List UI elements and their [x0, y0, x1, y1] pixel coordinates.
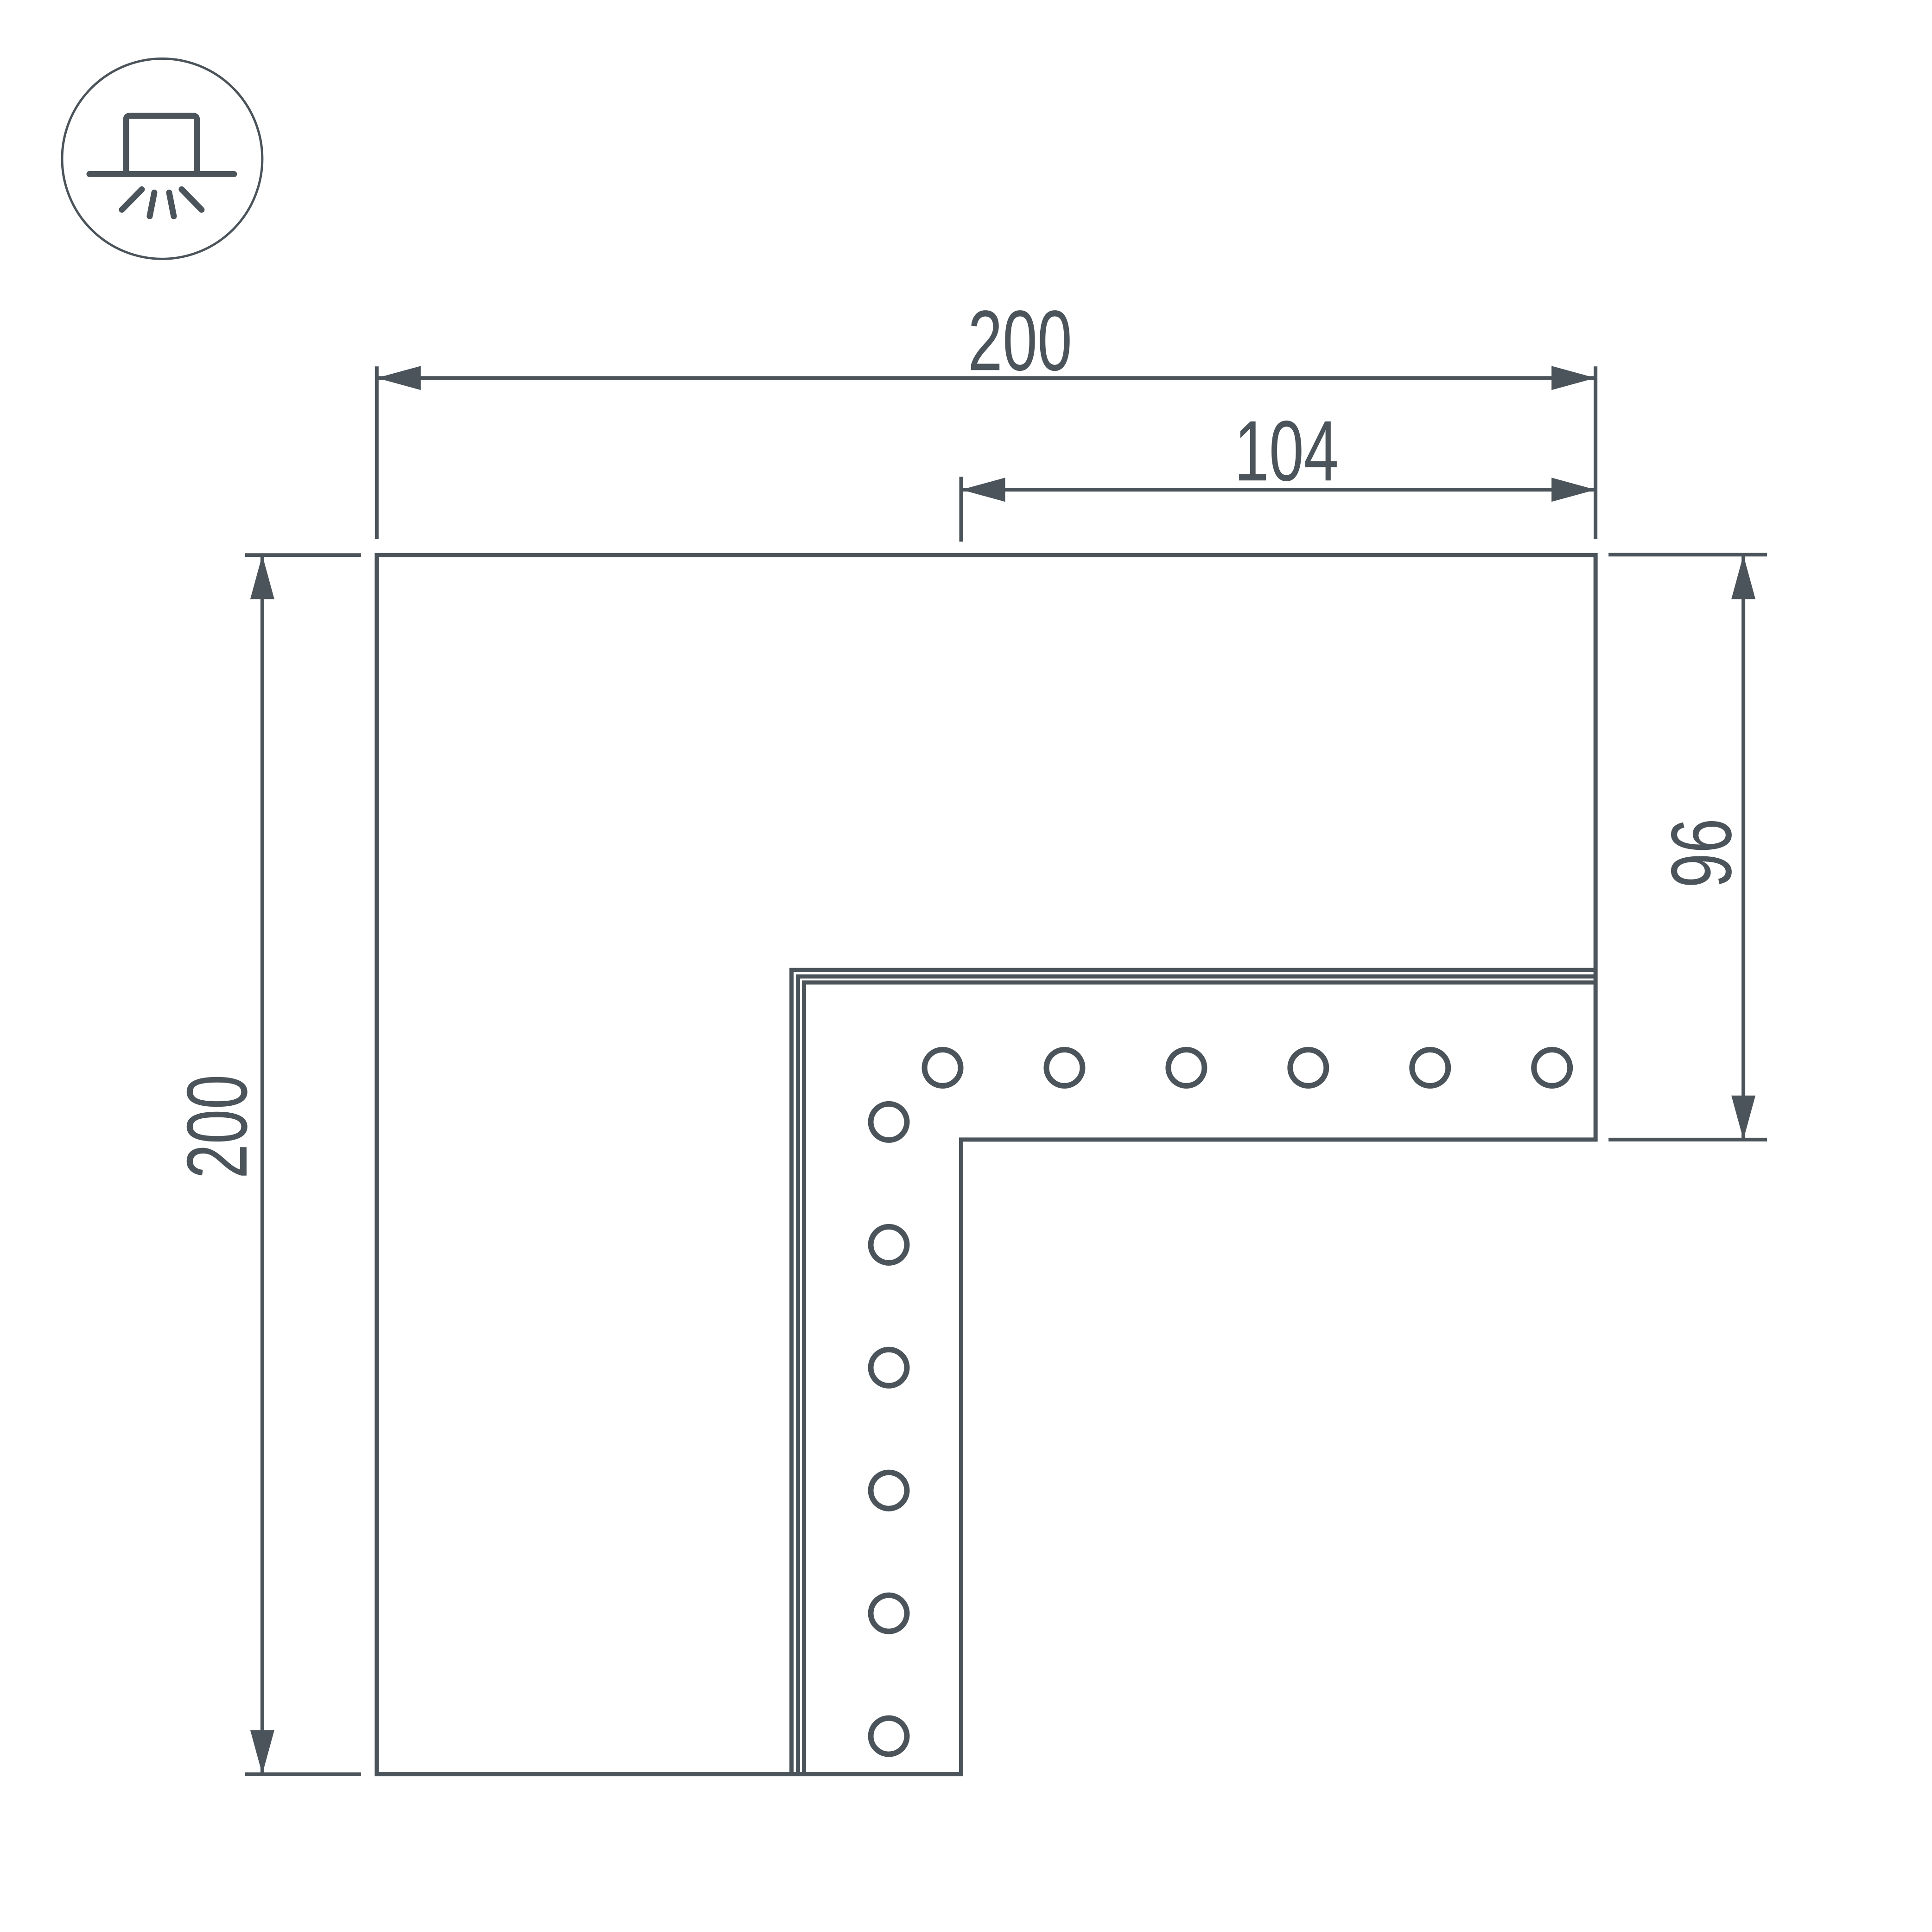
dimension-top-inner-width: 104 [961, 403, 1595, 542]
corner-connector-drawing: 200 104 200 96 [0, 0, 1932, 1932]
drawing-canvas: 200 104 200 96 [0, 0, 1932, 1932]
arrowhead-top [1731, 555, 1755, 599]
dimension-top-width: 200 [376, 293, 1595, 539]
recessed-downlight-icon [62, 58, 262, 259]
dimension-label-right-height: 96 [1654, 818, 1749, 888]
arrowhead-bottom [250, 1730, 274, 1774]
icon-circle [62, 58, 262, 259]
arrowhead-right [1551, 478, 1595, 502]
arrowhead-bottom [1731, 1096, 1755, 1140]
light-rays [121, 189, 201, 216]
dimension-label-top-inner-width: 104 [1234, 403, 1338, 499]
dimension-label-left-height: 200 [169, 1074, 265, 1179]
arrowhead-left [961, 478, 1005, 502]
dimension-label-top-width: 200 [967, 293, 1072, 389]
arrowhead-top [250, 555, 274, 599]
connector-body-outline [376, 555, 1595, 1774]
arrowhead-right [1551, 366, 1595, 390]
luminaire-box [126, 115, 197, 174]
mounting-holes [871, 1050, 1570, 1754]
dimension-left-height: 200 [169, 555, 361, 1774]
arrowhead-left [376, 366, 420, 390]
dimension-right-height: 96 [1608, 555, 1767, 1140]
